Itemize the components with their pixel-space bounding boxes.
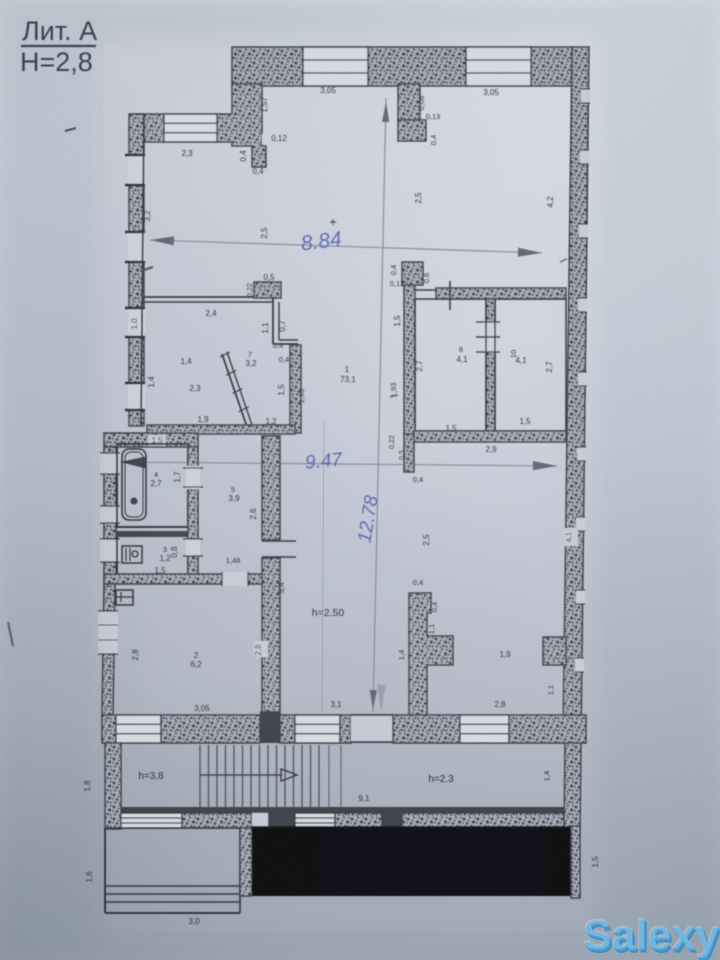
svg-text:Salexy: Salexy	[583, 911, 719, 959]
